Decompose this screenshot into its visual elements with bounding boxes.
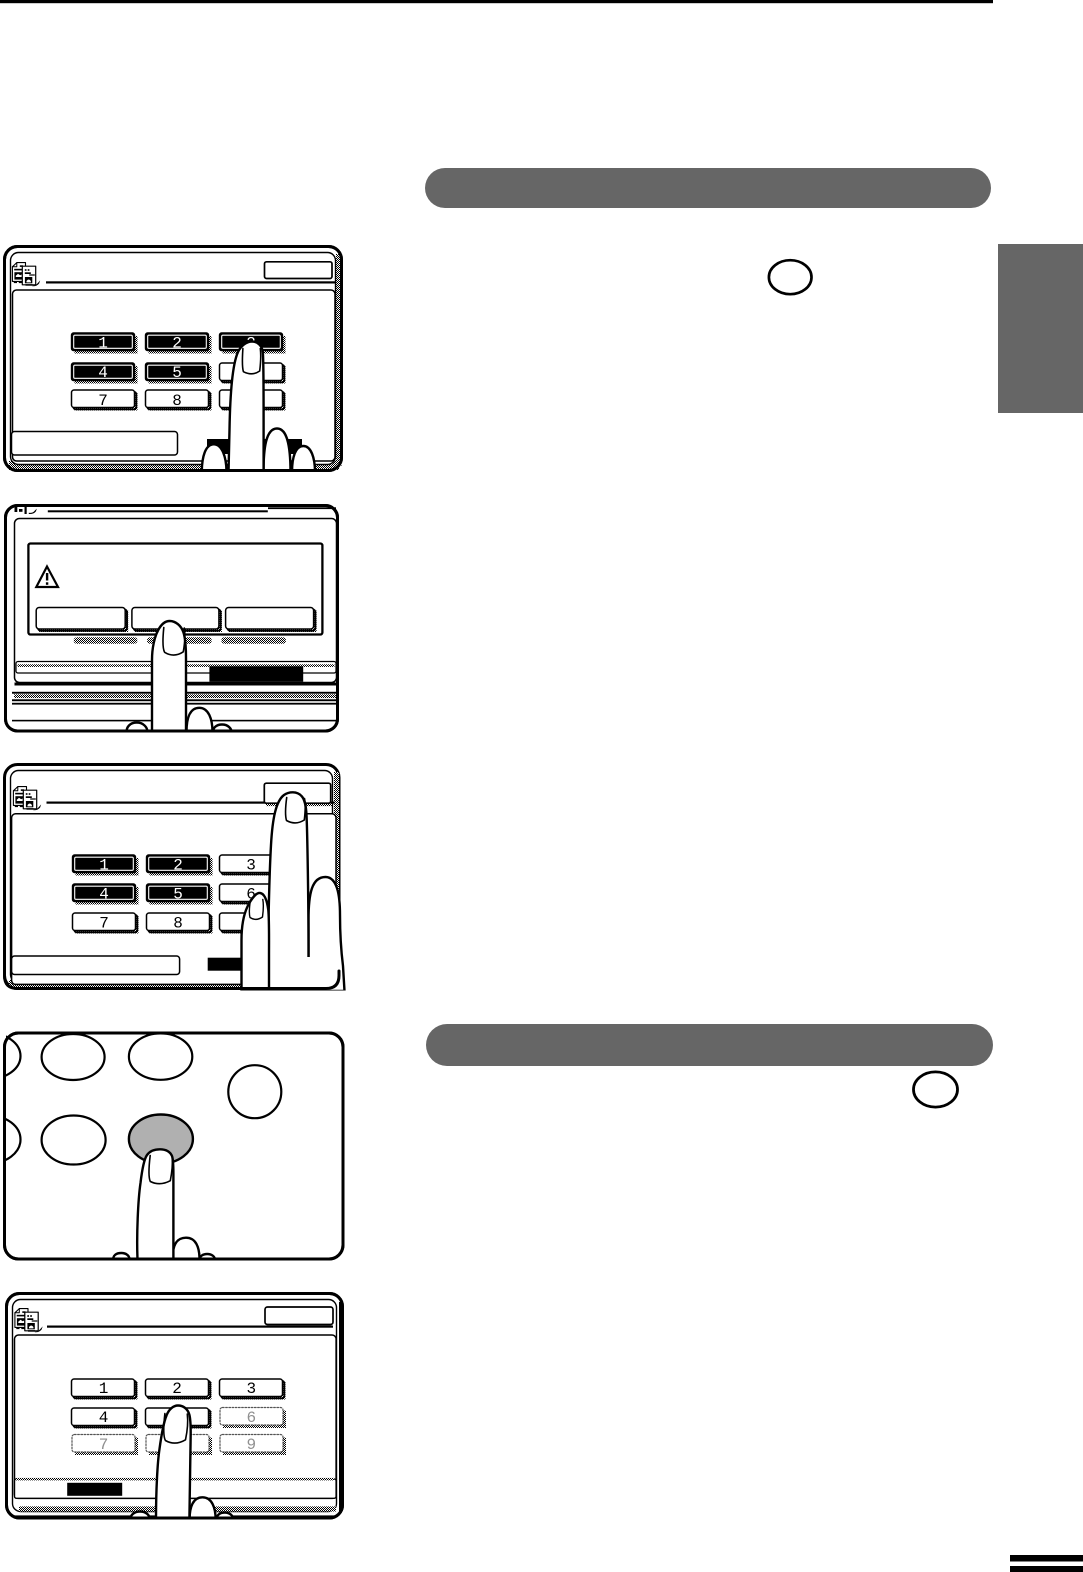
svg-text:4: 4 [99, 886, 109, 904]
svg-text:7: 7 [98, 392, 108, 410]
svg-text:5: 5 [172, 364, 182, 382]
svg-text:3: 3 [246, 857, 256, 875]
svg-text:3: 3 [246, 1380, 256, 1398]
svg-text:7: 7 [99, 1436, 109, 1454]
svg-text:6: 6 [246, 1409, 256, 1427]
svg-text:7: 7 [99, 915, 109, 933]
svg-text:2: 2 [172, 335, 182, 353]
svg-text:8: 8 [172, 392, 182, 410]
svg-text:1: 1 [99, 857, 109, 875]
svg-text:4: 4 [99, 1409, 109, 1427]
svg-text:5: 5 [173, 886, 183, 904]
svg-text:1: 1 [98, 335, 108, 353]
svg-text:2: 2 [173, 857, 183, 875]
svg-text:8: 8 [173, 915, 183, 933]
svg-text:4: 4 [98, 364, 108, 382]
svg-text:9: 9 [246, 1436, 256, 1454]
svg-text:2: 2 [172, 1380, 182, 1398]
svg-text:1: 1 [99, 1380, 109, 1398]
